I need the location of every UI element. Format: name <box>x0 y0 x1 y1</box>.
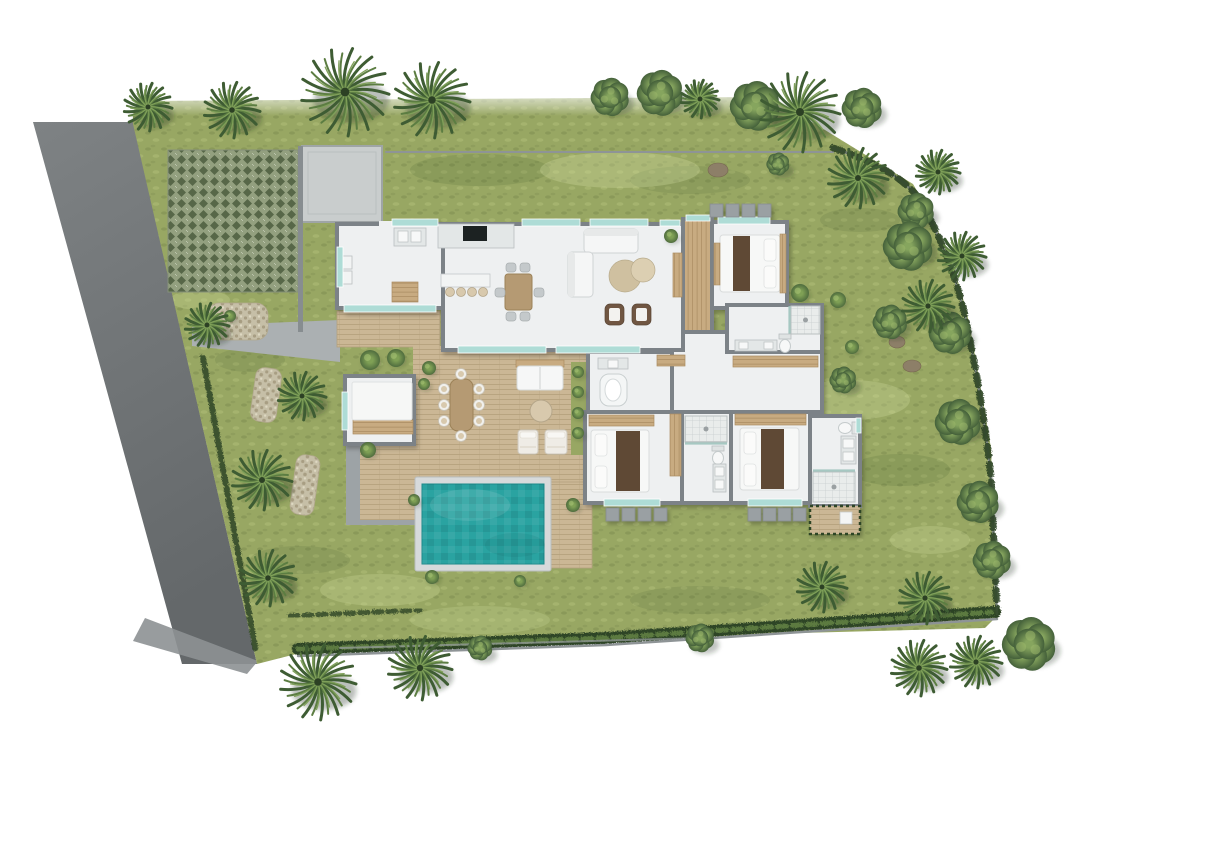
tree-highlight <box>947 420 956 429</box>
closet-wood <box>733 356 818 367</box>
tree-highlight <box>909 246 918 255</box>
paver-slab <box>726 204 739 217</box>
tree-highlight <box>481 648 486 653</box>
chair-seat <box>458 371 464 377</box>
bed <box>591 430 649 492</box>
tree-highlight <box>882 321 888 327</box>
guest-bed <box>352 382 412 420</box>
palm-center <box>205 323 210 328</box>
bush-body <box>566 498 580 512</box>
guest-wood-band <box>353 420 413 434</box>
tree-highlight <box>756 106 765 115</box>
shower-drain <box>803 318 808 323</box>
bed <box>740 428 799 490</box>
paver-slab <box>748 508 761 521</box>
toilet <box>839 422 858 434</box>
pool-shade <box>485 533 545 557</box>
paver-slab <box>622 508 635 521</box>
palm-tree <box>950 636 1004 688</box>
lounger-pillow <box>520 432 536 438</box>
tree-highlight <box>863 108 871 116</box>
window <box>337 247 343 287</box>
shower <box>790 306 821 334</box>
armchair <box>632 304 651 325</box>
tree-highlight <box>607 87 614 94</box>
lounger-pillow <box>547 432 565 438</box>
bed-bench <box>714 243 720 285</box>
window <box>342 392 348 430</box>
kitchen-cabinet <box>392 282 418 302</box>
outdoor-chair <box>439 384 450 395</box>
bed-runner <box>616 431 640 491</box>
bar-stool <box>446 288 455 297</box>
toilet-bowl <box>780 340 791 353</box>
paver-slab <box>606 508 619 521</box>
tree-highlight <box>955 411 964 420</box>
bed-pillow <box>595 466 607 488</box>
bush-highlight <box>574 388 578 392</box>
chair-seat <box>441 418 447 424</box>
palm-center <box>916 665 922 671</box>
tree-highlight <box>779 164 783 168</box>
sofa-l-back <box>568 252 575 297</box>
palm-center <box>973 659 978 664</box>
dining-chair <box>506 312 516 321</box>
vanity <box>735 340 777 351</box>
tree-highlight <box>611 97 618 104</box>
tree-highlight <box>907 210 914 217</box>
sliding-door <box>556 346 640 353</box>
bush-highlight <box>833 295 839 301</box>
bed-pillow <box>744 432 756 454</box>
bed-pillow <box>744 464 756 486</box>
tree-highlight <box>989 550 996 557</box>
tree-highlight <box>601 95 608 102</box>
tree-highlight <box>661 93 670 102</box>
bush-body <box>425 570 439 584</box>
paver-slab <box>710 204 723 217</box>
pool-highlight <box>430 489 510 521</box>
tree-highlight <box>701 638 706 643</box>
sink <box>715 467 724 476</box>
bush-body <box>387 349 405 367</box>
outdoor-shower-pad <box>840 512 852 524</box>
bush-body <box>572 427 584 439</box>
dining-table <box>505 274 532 310</box>
master-bed <box>720 234 786 293</box>
tree-highlight <box>859 98 867 106</box>
wardrobe-wood <box>589 415 654 426</box>
bed-pillow <box>595 434 607 456</box>
palm-center <box>796 108 804 116</box>
palm-center <box>820 585 825 590</box>
bush-body <box>360 442 376 458</box>
tree-highlight <box>917 211 924 218</box>
tree-highlight <box>478 642 483 647</box>
outdoor-chair <box>439 416 450 427</box>
palm-center <box>341 88 350 97</box>
chair-seat <box>441 402 447 408</box>
outdoor-chair <box>456 431 467 442</box>
dining-chair <box>506 263 516 272</box>
dining-chair <box>520 263 530 272</box>
tree-highlight <box>896 244 905 253</box>
west-apron <box>346 437 360 522</box>
sofa-back <box>584 229 638 236</box>
grass-light <box>320 574 440 606</box>
armchair <box>605 304 624 325</box>
kitchen-island <box>441 274 490 287</box>
bush-body <box>408 494 420 506</box>
window <box>748 499 802 506</box>
palm-center <box>698 97 703 102</box>
dining-chair <box>495 288 505 297</box>
tree-highlight <box>959 422 968 431</box>
palm-tree <box>916 150 962 194</box>
closet-wood <box>670 414 681 476</box>
sink <box>764 342 773 349</box>
toilet-bowl <box>839 423 852 434</box>
rock <box>708 163 728 177</box>
bush-body <box>422 361 436 375</box>
tree-highlight <box>1025 631 1035 641</box>
tree-highlight <box>841 373 846 378</box>
bush-highlight <box>420 380 424 384</box>
bush-highlight <box>848 343 853 348</box>
bar-stool <box>479 288 488 297</box>
tree-highlight <box>993 560 1000 567</box>
outdoor-chair <box>474 416 485 427</box>
powder-sink <box>608 360 618 368</box>
layer-pool <box>415 477 551 571</box>
wardrobe-wood <box>735 414 806 425</box>
tree-highlight <box>743 104 752 113</box>
shower <box>813 471 855 503</box>
sink <box>843 439 854 448</box>
cooktop <box>463 226 487 241</box>
grass-shade <box>410 154 550 186</box>
bed-pillow <box>764 239 776 261</box>
outdoor-round-table <box>530 400 552 422</box>
shower-drain <box>832 485 837 490</box>
tree-highlight <box>888 313 894 319</box>
bush-highlight <box>574 429 578 433</box>
toilet-tank <box>712 446 724 451</box>
bathtub-basin <box>605 379 621 401</box>
bush-highlight <box>364 354 371 361</box>
dining-chair <box>520 312 530 321</box>
room-utility <box>337 224 443 308</box>
paver-slab <box>793 508 806 521</box>
palm-center <box>229 107 235 113</box>
armchair-cushion <box>609 308 620 321</box>
tree-highlight <box>940 331 948 339</box>
bush-body <box>664 229 678 243</box>
tree-highlight <box>979 502 987 510</box>
garden-tree <box>591 78 634 116</box>
grass-shade <box>630 586 770 614</box>
entry-glass <box>686 215 710 221</box>
tree-highlight <box>474 647 479 652</box>
palm-center <box>960 254 965 259</box>
sliding-door <box>458 346 546 353</box>
bush-body <box>845 340 859 354</box>
tree-highlight <box>975 492 983 500</box>
tree-highlight <box>914 202 921 209</box>
site-plan <box>0 0 1212 868</box>
tree-highlight <box>649 91 658 100</box>
bush-body <box>791 284 809 302</box>
bush-highlight <box>428 573 433 578</box>
window <box>522 219 580 226</box>
palm-center <box>265 575 271 581</box>
window <box>660 220 680 226</box>
paver-slab <box>778 508 791 521</box>
sink <box>715 480 724 489</box>
sun-lounger <box>545 430 567 454</box>
bush-highlight <box>410 496 414 500</box>
bed-runner <box>733 236 750 291</box>
palm-center <box>428 96 436 104</box>
toilet-tank <box>779 334 791 339</box>
chair-seat <box>458 433 464 439</box>
tree-highlight <box>951 333 959 341</box>
bush-highlight <box>391 353 397 359</box>
paver-slab <box>763 508 776 521</box>
bush-highlight <box>516 577 520 581</box>
bush-body <box>830 292 846 308</box>
paver-slab <box>654 508 667 521</box>
tree-highlight <box>968 500 976 508</box>
window <box>590 219 648 226</box>
chair-seat <box>476 402 482 408</box>
entry-corridor <box>683 219 712 332</box>
tree-highlight <box>837 379 842 384</box>
garden-tree <box>957 481 1004 523</box>
dining-chair <box>534 288 544 297</box>
bush-highlight <box>363 445 369 451</box>
tree-highlight <box>844 380 849 385</box>
palm-tree <box>891 640 948 696</box>
outdoor-dining-table <box>450 379 473 431</box>
vanity <box>841 436 856 464</box>
paver-slab <box>638 508 651 521</box>
bed-runner <box>761 429 784 489</box>
outdoor-chair <box>474 384 485 395</box>
outdoor-chair <box>474 400 485 411</box>
bush-body <box>360 350 380 370</box>
tree-highlight <box>772 163 776 167</box>
palm-center <box>259 477 265 483</box>
grass-light <box>890 526 970 554</box>
scullery-sink <box>398 231 408 242</box>
entrance-pad <box>302 146 382 222</box>
paver-slab <box>742 204 755 217</box>
tree-highlight <box>891 322 897 328</box>
palm-center <box>146 105 151 110</box>
tree-highlight <box>776 158 780 162</box>
scullery-sink <box>411 231 421 242</box>
grass-shade <box>850 454 950 486</box>
floor-plan-svg <box>0 0 1212 868</box>
chair-seat <box>476 386 482 392</box>
garden-tree <box>973 541 1016 579</box>
palm-center <box>936 170 941 175</box>
window <box>718 217 770 224</box>
palm-center <box>314 678 322 686</box>
tree-highlight <box>698 631 703 636</box>
tree-highlight <box>1030 644 1040 654</box>
grass-light <box>540 152 700 188</box>
tree-highlight <box>752 94 761 103</box>
deck-walkway <box>337 311 440 347</box>
bush-body <box>514 575 526 587</box>
palm-center <box>922 595 927 600</box>
bar-stool <box>457 288 466 297</box>
vanity <box>713 464 726 492</box>
bush-highlight <box>574 368 578 372</box>
bush-highlight <box>569 501 574 506</box>
bush-body <box>572 386 584 398</box>
outdoor-chair <box>456 369 467 380</box>
window <box>604 499 660 506</box>
bush-body <box>572 407 584 419</box>
outdoor-chair <box>439 400 450 411</box>
bush-highlight <box>667 232 672 237</box>
tree-highlight <box>1016 642 1026 652</box>
sink <box>739 342 748 349</box>
palm-center <box>855 175 861 181</box>
closet-wood <box>657 355 685 366</box>
tree-highlight <box>657 82 666 91</box>
media-console <box>673 253 682 297</box>
toilet <box>712 446 724 465</box>
grass-light <box>410 606 550 634</box>
sink <box>843 452 854 461</box>
grass-shade <box>820 208 900 232</box>
garden-tree <box>1002 617 1061 671</box>
window <box>856 418 861 433</box>
coffee-table-round <box>631 258 655 282</box>
bush-body <box>418 378 430 390</box>
palm-center <box>300 394 305 399</box>
toilet-bowl <box>713 452 724 465</box>
window <box>344 305 436 312</box>
rock <box>903 360 921 372</box>
garden-tree <box>842 88 887 128</box>
pad-wall <box>298 146 303 332</box>
tree-highlight <box>693 637 698 642</box>
shower-drain <box>704 427 709 432</box>
garden-tree <box>637 70 688 116</box>
armchair-cushion <box>636 308 647 321</box>
bed-headboard <box>780 234 786 293</box>
bed-pillow <box>764 266 776 288</box>
toilet <box>779 334 791 353</box>
bush-highlight <box>574 409 578 413</box>
parking-pavers <box>168 150 298 292</box>
shower <box>685 416 727 444</box>
palm-center <box>925 303 930 308</box>
tree-highlight <box>983 558 990 565</box>
bar-stool <box>468 288 477 297</box>
paver-slab <box>758 204 771 217</box>
chair-seat <box>441 386 447 392</box>
palm-center <box>417 665 423 671</box>
bush-highlight <box>425 364 430 369</box>
outdoor-shower-deck <box>810 506 860 534</box>
tree-highlight <box>852 106 860 114</box>
bush-highlight <box>795 288 801 294</box>
chair-seat <box>476 418 482 424</box>
sun-lounger <box>518 430 538 454</box>
tree-highlight <box>905 234 914 243</box>
window <box>392 219 438 226</box>
bush-body <box>572 366 584 378</box>
